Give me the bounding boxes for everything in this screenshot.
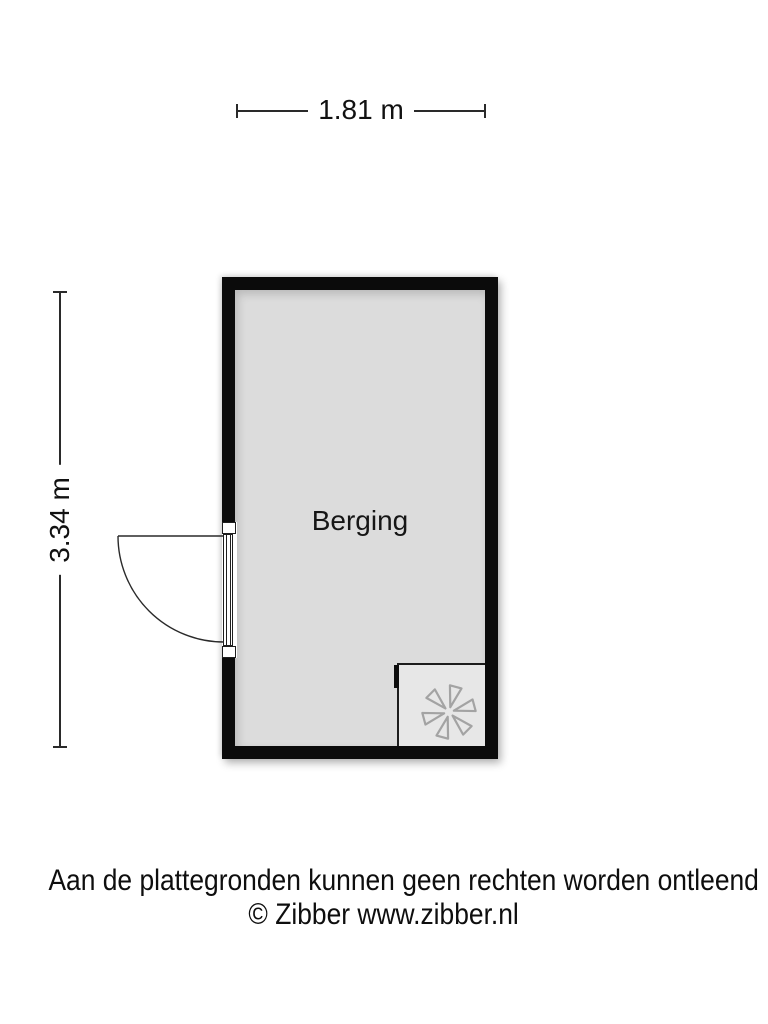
height-dimension-label: 3.34 m [44, 465, 76, 575]
ventilation-fan-icon [419, 682, 479, 742]
floor-plan: 1.81 m 3.34 m Berging Aan de pl [0, 0, 768, 1024]
room-label: Berging [235, 505, 485, 537]
appliance-edge-mark [394, 665, 399, 688]
footer-credit: © Zibber www.zibber.nl [0, 898, 768, 932]
height-dimension-tick-top [53, 291, 67, 293]
footer-disclaimer: Aan de plattegronden kunnen geen rechten… [0, 864, 768, 898]
width-dimension-label: 1.81 m [237, 94, 485, 126]
height-dimension-tick-bottom [53, 746, 67, 748]
door-swing-arc [100, 520, 240, 660]
appliance-box [397, 663, 485, 746]
